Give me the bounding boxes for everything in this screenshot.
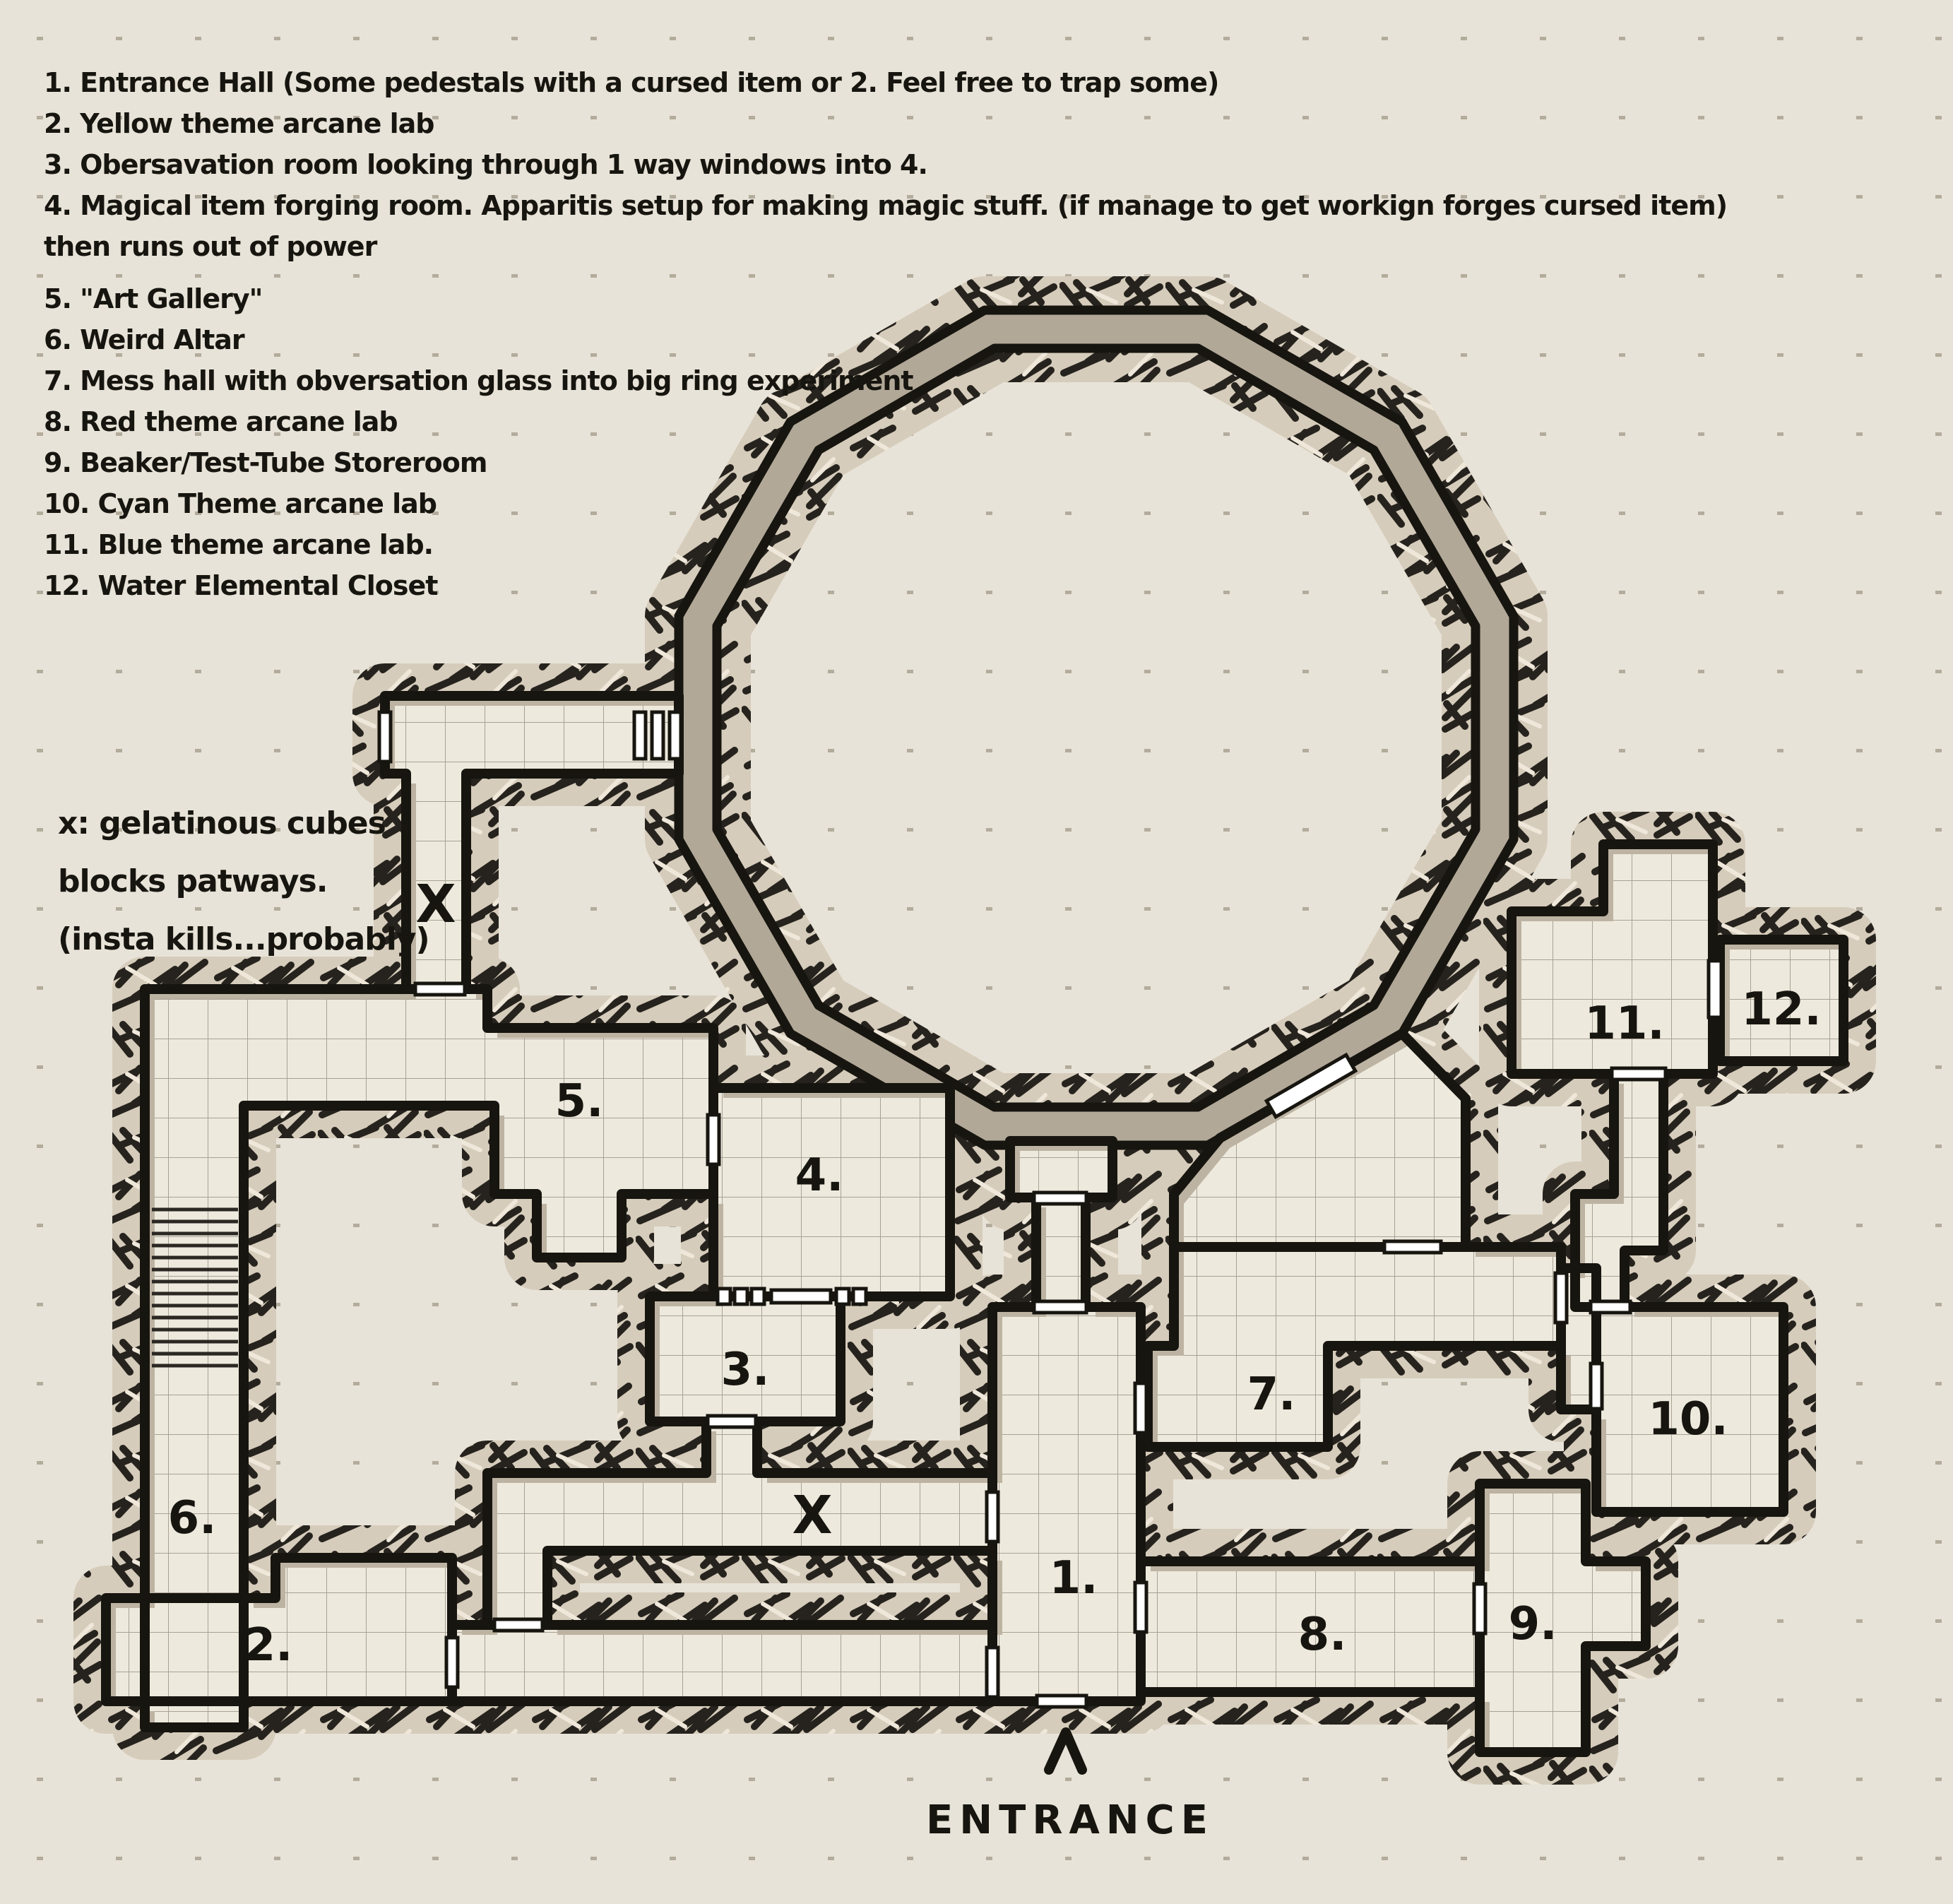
room-label-9: 9. (1509, 1598, 1557, 1650)
legend-item: 2. Yellow theme arcane lab (44, 108, 434, 139)
legend-item: 10. Cyan Theme arcane lab (44, 488, 437, 519)
entrance-label: ENTRANCE (926, 1797, 1214, 1843)
room-label-7: 7. (1247, 1368, 1296, 1421)
legend-item: 12. Water Elemental Closet (44, 570, 438, 601)
door (1591, 1301, 1630, 1313)
legend-item: 4. Magical item forging room. Apparitis … (44, 190, 1727, 221)
gelatinous-cube-mark: X (792, 1485, 832, 1546)
room-label-6: 6. (168, 1492, 217, 1544)
one-way-windows (718, 1289, 866, 1304)
legend-item: then runs out of power (44, 231, 378, 262)
legend-item: 1. Entrance Hall (Some pedestals with a … (44, 67, 1218, 98)
door (494, 1619, 542, 1631)
door (1555, 1273, 1567, 1323)
room-label-2: 2. (244, 1619, 293, 1672)
room-label-4: 4. (795, 1149, 844, 1202)
door (379, 712, 391, 762)
cube-note-line: (insta kills...probably) (58, 921, 429, 957)
room-label-8: 8. (1298, 1609, 1347, 1661)
room-label-12: 12. (1741, 983, 1821, 1036)
door (1037, 1696, 1086, 1707)
door (708, 1115, 719, 1164)
legend-item: 5. "Art Gallery" (44, 283, 262, 314)
door (1709, 961, 1721, 1017)
legend-item: 8. Red theme arcane lab (44, 406, 398, 437)
door (987, 1492, 998, 1542)
room-label-1: 1. (1050, 1552, 1098, 1604)
door (1034, 1193, 1086, 1204)
legend-item: 3. Obersavation room looking through 1 w… (44, 149, 927, 180)
legend-item: 6. Weird Altar (44, 324, 245, 355)
door (1384, 1241, 1441, 1253)
door (446, 1638, 458, 1687)
legend-item: 7. Mess hall with obversation glass into… (44, 365, 913, 396)
room-label-5: 5. (555, 1075, 604, 1128)
cube-note-line: x: gelatinous cubes (58, 805, 386, 841)
door (1612, 1068, 1666, 1080)
door (415, 983, 465, 995)
legend-item: 9. Beaker/Test-Tube Storeroom (44, 447, 487, 478)
door (1474, 1584, 1485, 1633)
map-canvas: X X 1. 2. 3. 4. 5. 6. 7. 8. 9. 10. 11. 1… (0, 0, 1953, 1904)
door (634, 712, 646, 759)
door (1135, 1383, 1146, 1433)
door (1034, 1301, 1086, 1313)
door (670, 712, 681, 759)
room-label-10: 10. (1648, 1393, 1728, 1445)
door (708, 1416, 756, 1427)
door (652, 712, 663, 759)
legend-item: 11. Blue theme arcane lab. (44, 529, 433, 560)
room-label-11: 11. (1584, 998, 1664, 1050)
dungeon-map-page: X X 1. 2. 3. 4. 5. 6. 7. 8. 9. 10. 11. 1… (0, 0, 1953, 1904)
door (1135, 1583, 1146, 1632)
door (987, 1648, 998, 1697)
cube-note-line: blocks patways. (58, 863, 327, 899)
room-label-3: 3. (721, 1344, 770, 1396)
door (1591, 1364, 1602, 1409)
